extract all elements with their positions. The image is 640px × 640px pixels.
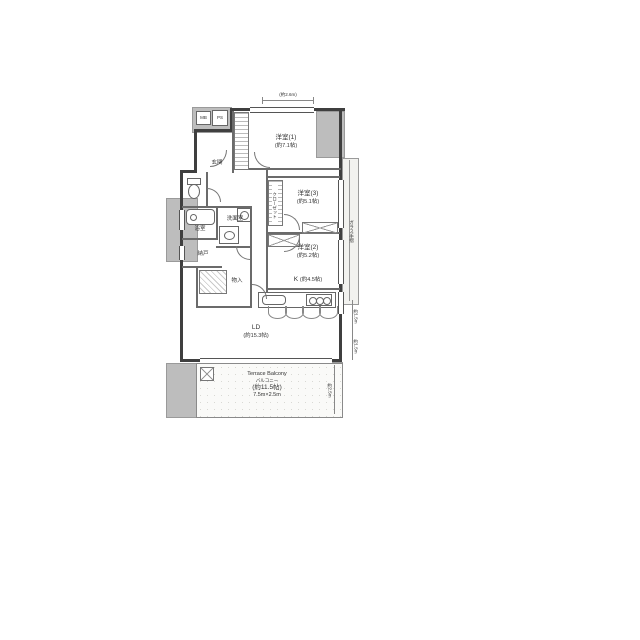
wall-entry-left bbox=[194, 129, 197, 173]
wall-storage-bottom bbox=[182, 266, 222, 268]
closet-bed1 bbox=[234, 112, 249, 170]
wall-bath-right bbox=[216, 206, 218, 238]
balcony-label: Terrace Balcony バルコニー (約11.5帖) 7.5m×2.5m bbox=[212, 371, 322, 399]
meter-box-label: MB bbox=[197, 115, 210, 121]
room-bath-label: 浴室 bbox=[188, 226, 212, 233]
balcony-title: Terrace Balcony bbox=[212, 371, 322, 378]
top-dim-label: (約2.6m) bbox=[264, 92, 312, 98]
balcony-area: (約11.5帖) bbox=[212, 384, 322, 392]
room-living-label: LD(約15.3帖) bbox=[228, 324, 284, 340]
top-dim-tick-right bbox=[313, 97, 314, 104]
bed1-door-arc bbox=[254, 152, 270, 168]
room-bed3-label: 洋室(3)(約5.1帖) bbox=[282, 190, 334, 206]
wall-closetroom-right bbox=[250, 248, 252, 308]
room-storage-label: 納戸 bbox=[190, 251, 216, 258]
wall-closetroom-bottom bbox=[196, 306, 252, 308]
room-kitchen-label: K (約4.5帖) bbox=[286, 276, 330, 284]
wall-entry-top bbox=[194, 129, 233, 132]
pipe-space-label: PS bbox=[213, 115, 227, 121]
floor-plan-canvas: MB PS ガラス手摺 クローゼット bbox=[0, 0, 640, 640]
washbasin-bowl-icon bbox=[224, 231, 235, 240]
shelf-closet-room bbox=[199, 270, 227, 294]
window-bed2-right bbox=[338, 240, 344, 284]
right-dim-lower: 約1.5m bbox=[353, 333, 359, 359]
bathtub-drain-icon bbox=[190, 214, 197, 221]
right-dim-upper: 約1.5m bbox=[353, 303, 359, 329]
burner-icon bbox=[323, 297, 331, 305]
wc-door-arc bbox=[207, 188, 221, 202]
balcony-dimensions: 7.5m×2.5m bbox=[212, 392, 322, 399]
closet-bed3-side: クローゼット bbox=[268, 180, 283, 226]
meter-box: MB bbox=[196, 111, 211, 125]
washbasin-counter-icon bbox=[219, 226, 239, 244]
room-bed1-label: 洋室(1)(約7.1帖) bbox=[258, 134, 314, 150]
toilet-bowl-icon bbox=[188, 184, 200, 199]
room-entrance-label: 玄関 bbox=[206, 160, 228, 167]
window-bed3-right bbox=[338, 180, 344, 228]
balcony-depth-label: 約2.5m bbox=[327, 376, 333, 404]
storage-door-arc bbox=[252, 284, 267, 299]
window-storage-left bbox=[179, 246, 185, 260]
stove-icon bbox=[306, 294, 332, 306]
room-bed2-label: 洋室(2)(約5.2帖) bbox=[282, 244, 334, 260]
balcony-depth-line bbox=[334, 365, 335, 414]
wall-closetroom-left bbox=[196, 266, 198, 308]
room-powder-label: 洗面室 bbox=[222, 216, 248, 223]
top-dim-line bbox=[262, 100, 314, 101]
window-kitchen-right bbox=[338, 292, 344, 314]
common-area-bottom-left bbox=[166, 363, 199, 418]
bathtub-icon bbox=[186, 209, 215, 225]
closet-bed3-bottom bbox=[302, 222, 338, 234]
wall-bed3-top bbox=[266, 176, 340, 178]
wall-bed2-k bbox=[266, 288, 340, 290]
window-bath-left bbox=[179, 210, 185, 230]
window-bed1-top bbox=[250, 107, 314, 113]
glass-rail-label: ガラス手摺 bbox=[349, 208, 355, 254]
bed3-door-arc bbox=[284, 214, 300, 230]
closet-label: クローゼット bbox=[272, 185, 278, 225]
powder-door-arc bbox=[236, 246, 250, 260]
partition-arc bbox=[319, 306, 338, 319]
room-closetroom-label: 物入 bbox=[226, 278, 248, 285]
top-dim-tick-left bbox=[262, 97, 263, 104]
wall-bath-bottom bbox=[182, 238, 218, 240]
pipe-space-box: PS bbox=[212, 110, 228, 126]
